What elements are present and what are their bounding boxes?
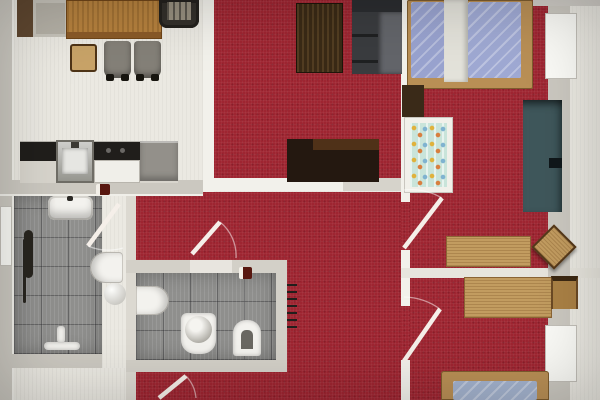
sink-faucet — [71, 142, 79, 148]
radiator-tick — [287, 291, 297, 293]
door-gap-bottom — [401, 306, 410, 360]
shower-handle — [57, 326, 65, 343]
sofa-seam-1 — [352, 34, 378, 37]
wall-left-outer — [0, 0, 14, 400]
window-right-top — [545, 13, 577, 79]
desk-chair-bottom-right — [551, 276, 578, 309]
double-bed-frame — [407, 0, 533, 89]
dining-table — [66, 0, 162, 39]
crib-bedding — [410, 123, 447, 187]
door-gap-top — [401, 202, 410, 250]
laundry-basket — [104, 283, 126, 305]
bed-duvet — [468, 2, 521, 78]
wall-dining-living — [203, 0, 214, 192]
wall-wc-south — [126, 360, 287, 372]
shower-mixer-bar — [44, 342, 80, 350]
kitchen-cabinet-white — [94, 160, 140, 183]
single-bed-mattress — [453, 381, 537, 400]
armchair-seat — [167, 2, 191, 20]
sideboard-gray — [33, 0, 68, 37]
radiator-tick — [287, 319, 297, 321]
baby-crib — [404, 117, 453, 193]
radiator-tick — [287, 305, 297, 307]
wc-bidet — [233, 320, 261, 356]
radiator-tick — [287, 298, 297, 300]
wc-toilet — [136, 286, 169, 315]
single-bed-frame — [441, 371, 549, 400]
wall-wc-east — [276, 260, 287, 372]
nightstand — [402, 85, 424, 117]
cooktop-knob-1 — [106, 148, 111, 153]
cooktop-knob-2 — [120, 148, 125, 153]
tv-lowboard-top — [313, 139, 379, 150]
radiator-tick — [287, 284, 297, 286]
wc-basin — [181, 313, 216, 354]
sofa-seam-2 — [352, 60, 378, 63]
wood-chair — [70, 44, 97, 72]
armchair — [159, 0, 199, 28]
radiator — [287, 284, 297, 333]
bath-sink-faucet — [67, 196, 73, 201]
towel-radiator — [24, 230, 33, 278]
hallway-bottom — [0, 368, 128, 400]
floor-plan — [0, 0, 600, 400]
wall-accessory-wc — [239, 267, 252, 279]
wc-door-gap — [190, 260, 232, 273]
wall-top-right-sliver — [533, 0, 600, 6]
radiator-tick — [287, 312, 297, 314]
sink-basin — [62, 148, 88, 174]
gray-chair-1 — [104, 41, 131, 78]
counter-black-left — [20, 142, 58, 161]
counter-gray-right — [140, 141, 178, 181]
teal-daybed — [523, 100, 562, 212]
wall-bathroom-south — [0, 354, 102, 368]
window-left — [0, 206, 12, 266]
wc-bidet-slot — [241, 330, 253, 349]
kitchen-sink — [56, 140, 94, 183]
wall-accessory-hall — [96, 184, 110, 195]
sofa — [352, 0, 402, 74]
coffee-table — [296, 3, 343, 73]
tv-lowboard — [287, 139, 379, 182]
bed-pillows — [411, 2, 444, 78]
sideboard-dark — [17, 0, 33, 37]
desk-bottom-right — [464, 277, 552, 318]
window-right-bottom — [545, 325, 577, 382]
sofa-back — [352, 0, 402, 12]
bed-middle-runner — [444, 0, 468, 82]
bath-toilet — [90, 252, 123, 283]
daybed-gap — [549, 158, 562, 168]
gray-chair-2 — [134, 41, 161, 78]
desk-top-right — [446, 236, 531, 267]
sofa-seat — [377, 12, 402, 74]
radiator-tick — [287, 326, 297, 328]
counter-black-mid — [94, 142, 140, 161]
wc-basin-bowl — [185, 316, 212, 343]
